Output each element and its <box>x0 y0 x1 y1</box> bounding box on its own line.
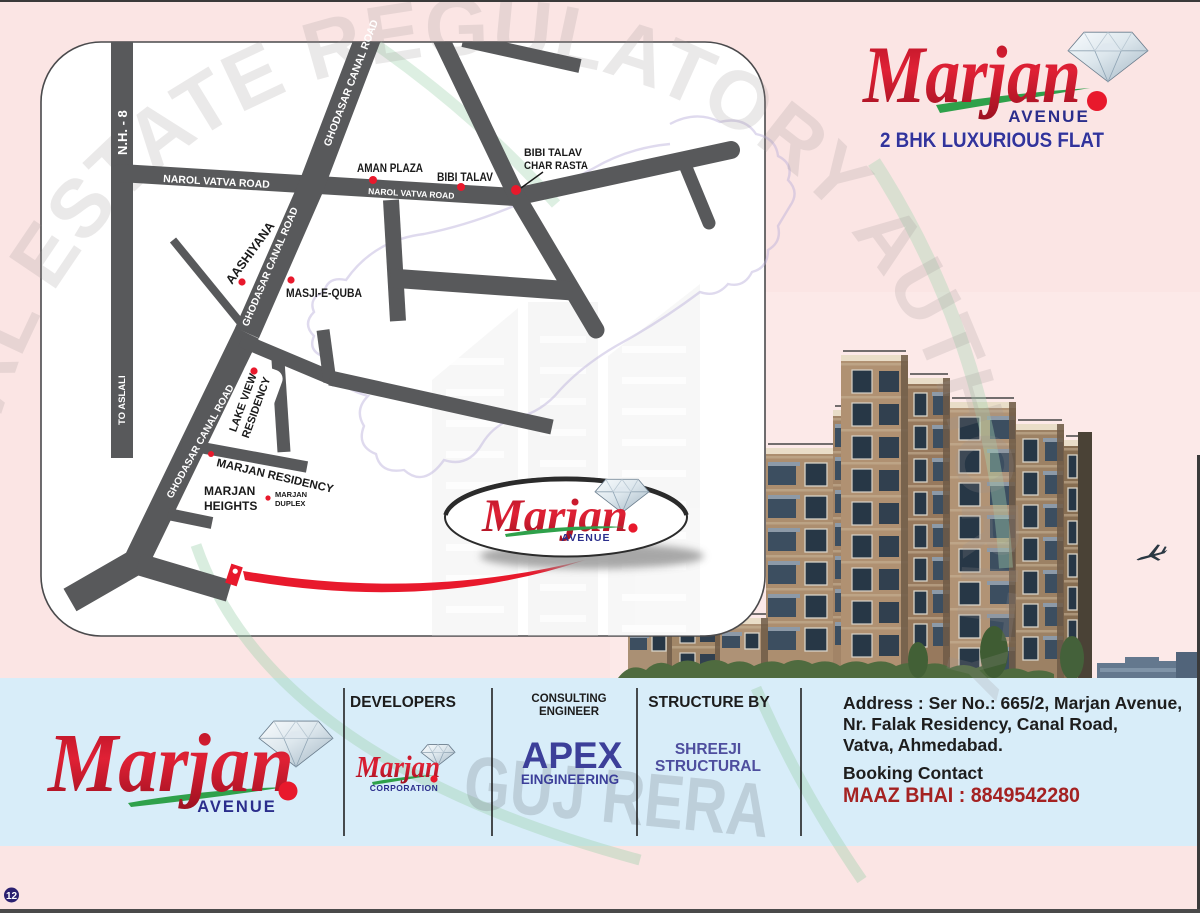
svg-text:STRUCTURAL: STRUCTURAL <box>655 758 761 775</box>
svg-text:AVENUE: AVENUE <box>562 532 611 544</box>
svg-text:Nr. Falak Residency, Canal Roa: Nr. Falak Residency, Canal Road, <box>843 714 1118 734</box>
svg-text:ENGINEER: ENGINEER <box>539 706 600 718</box>
svg-text:AVENUE: AVENUE <box>197 798 277 816</box>
svg-text:Marjan: Marjan <box>355 749 440 784</box>
svg-text:MARJAN: MARJAN <box>275 490 307 499</box>
svg-text:TO ASLALI: TO ASLALI <box>117 375 128 425</box>
svg-text:EINGINEERING: EINGINEERING <box>521 772 619 787</box>
svg-text:HEIGHTS: HEIGHTS <box>204 499 257 513</box>
svg-text:Marjan: Marjan <box>46 717 294 810</box>
svg-text:SHREEJI: SHREEJI <box>675 741 741 758</box>
svg-text:N.H. - 8: N.H. - 8 <box>115 110 130 155</box>
svg-text:BIBI TALAV: BIBI TALAV <box>524 147 583 159</box>
svg-text:APEX: APEX <box>522 735 623 776</box>
svg-text:CONSULTING: CONSULTING <box>531 693 606 705</box>
svg-text:MARJAN: MARJAN <box>204 484 255 498</box>
svg-text:STRUCTURE BY: STRUCTURE BY <box>648 694 770 711</box>
svg-text:MASJI-E-QUBA: MASJI-E-QUBA <box>286 288 362 300</box>
svg-text:AVENUE: AVENUE <box>1008 107 1090 126</box>
svg-text:BIBI TALAV: BIBI TALAV <box>437 170 493 184</box>
svg-text:2 BHK LUXURIOUS FLAT: 2 BHK LUXURIOUS FLAT <box>880 129 1104 152</box>
svg-text:Booking Contact: Booking Contact <box>843 763 983 783</box>
svg-text:Address : Ser No.: 665/2, Marj: Address : Ser No.: 665/2, Marjan Avenue, <box>843 693 1182 713</box>
svg-text:DEVELOPERS: DEVELOPERS <box>350 694 456 711</box>
svg-text:12: 12 <box>6 891 18 902</box>
svg-text:Vatva, Ahmedabad.: Vatva, Ahmedabad. <box>843 735 1003 755</box>
svg-text:CHAR RASTA: CHAR RASTA <box>524 160 588 172</box>
svg-text:DUPLEX: DUPLEX <box>275 499 305 508</box>
svg-text:CORPORATION: CORPORATION <box>370 783 439 793</box>
svg-text:AMAN PLAZA: AMAN PLAZA <box>357 161 423 175</box>
svg-text:MAAZ BHAI : 8849542280: MAAZ BHAI : 8849542280 <box>843 784 1080 807</box>
